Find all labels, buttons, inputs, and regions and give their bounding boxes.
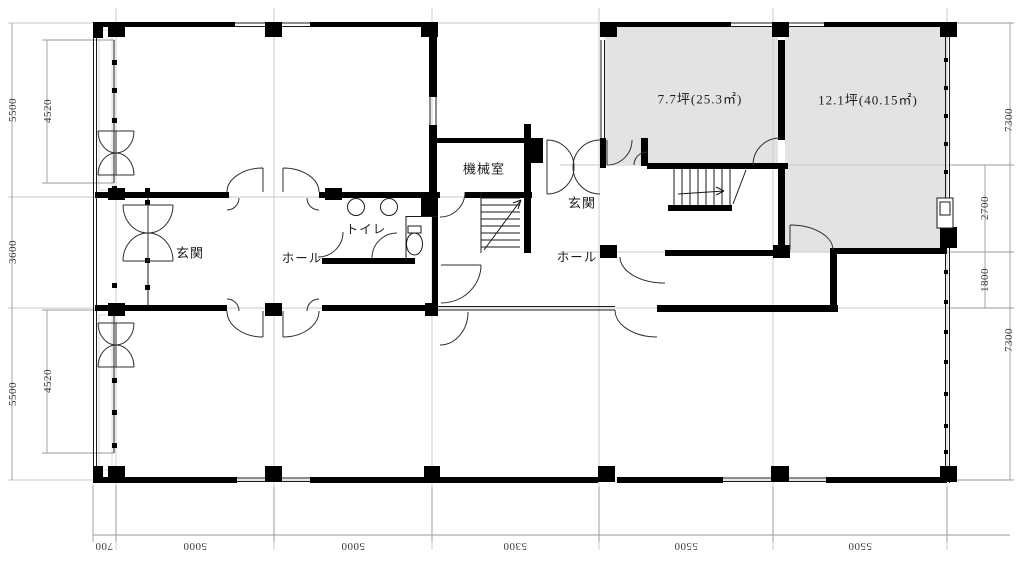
wash-basin [381, 199, 398, 216]
stairs [481, 168, 746, 253]
dim-left-3600: 3600 [7, 240, 19, 264]
dim-bottom-5500-a: 5500 [674, 540, 698, 552]
room-label-hall-left: ホール [282, 248, 323, 267]
room-label-machine-room: 機械室 [463, 159, 505, 178]
room-label-hall-right: ホール [557, 247, 598, 266]
dim-left-4520-bottom: 4520 [42, 369, 54, 393]
area-label-unit-a: 7.7坪(25.3㎡) [658, 89, 743, 108]
dim-bottom-700: 700 [95, 540, 113, 552]
toilet-bowl [407, 233, 423, 255]
room-label-toilet: トイレ [346, 219, 387, 238]
floor-plan-canvas: 機械室 トイレ 玄関 ホール 玄関 ホール 7.7坪(25.3㎡) 12.1坪(… [0, 0, 1024, 561]
dim-bottom-5000-b: 5000 [341, 540, 365, 552]
dim-right-7300-top: 7300 [1003, 108, 1015, 132]
dim-left-5500-top: 5500 [7, 98, 19, 122]
dim-bottom-5000-a: 5000 [183, 540, 207, 552]
room-label-entrance-right: 玄関 [568, 193, 596, 212]
dim-right-1800: 1800 [979, 268, 991, 292]
dim-right-7300-bottom: 7300 [1003, 328, 1015, 352]
dim-bottom-5500-b: 5500 [848, 540, 872, 552]
floor-plan-drawing [0, 0, 1024, 561]
toilet-tank [408, 226, 421, 233]
leased-room-fills [605, 27, 947, 252]
elevator-shaft [937, 198, 953, 228]
dim-bottom-5300: 5300 [503, 540, 527, 552]
dim-left-5500-bottom: 5500 [7, 382, 19, 406]
wash-basin [348, 199, 365, 216]
dim-right-2700: 2700 [979, 196, 991, 220]
room-label-entrance-left: 玄関 [176, 243, 204, 262]
area-label-unit-b: 12.1坪(40.15㎡) [818, 90, 918, 109]
dim-left-4520-top: 4520 [42, 99, 54, 123]
